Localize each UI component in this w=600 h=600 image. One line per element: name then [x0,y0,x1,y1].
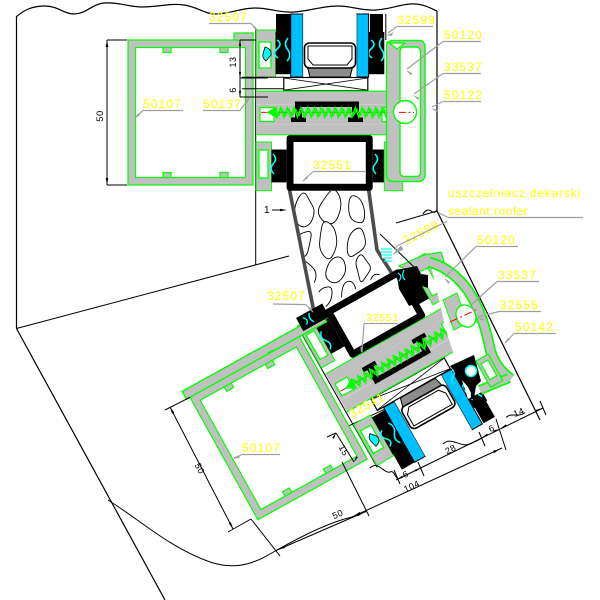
svg-text:50122: 50122 [444,88,483,102]
svg-text:32599: 32599 [397,13,436,27]
svg-text:1: 1 [264,205,270,216]
svg-text:32507: 32507 [209,10,248,24]
svg-text:50107: 50107 [242,441,281,455]
svg-text:50142: 50142 [515,320,554,334]
svg-text:uszczelniacz dekarski: uszczelniacz dekarski [448,186,581,200]
svg-text:50120: 50120 [444,28,483,42]
svg-text:sealant roofer: sealant roofer [448,204,528,218]
svg-text:50107: 50107 [143,97,182,111]
svg-text:50120: 50120 [477,233,516,247]
svg-text:13: 13 [228,56,238,67]
svg-text:50137: 50137 [203,97,242,111]
svg-text:50: 50 [95,110,106,122]
svg-text:33537: 33537 [498,268,537,282]
svg-text:32507: 32507 [267,289,306,303]
svg-text:33537: 33537 [444,60,483,74]
svg-text:32551: 32551 [366,312,399,324]
svg-text:32555: 32555 [500,298,539,312]
svg-text:6: 6 [228,87,238,93]
svg-text:32551: 32551 [313,158,352,172]
